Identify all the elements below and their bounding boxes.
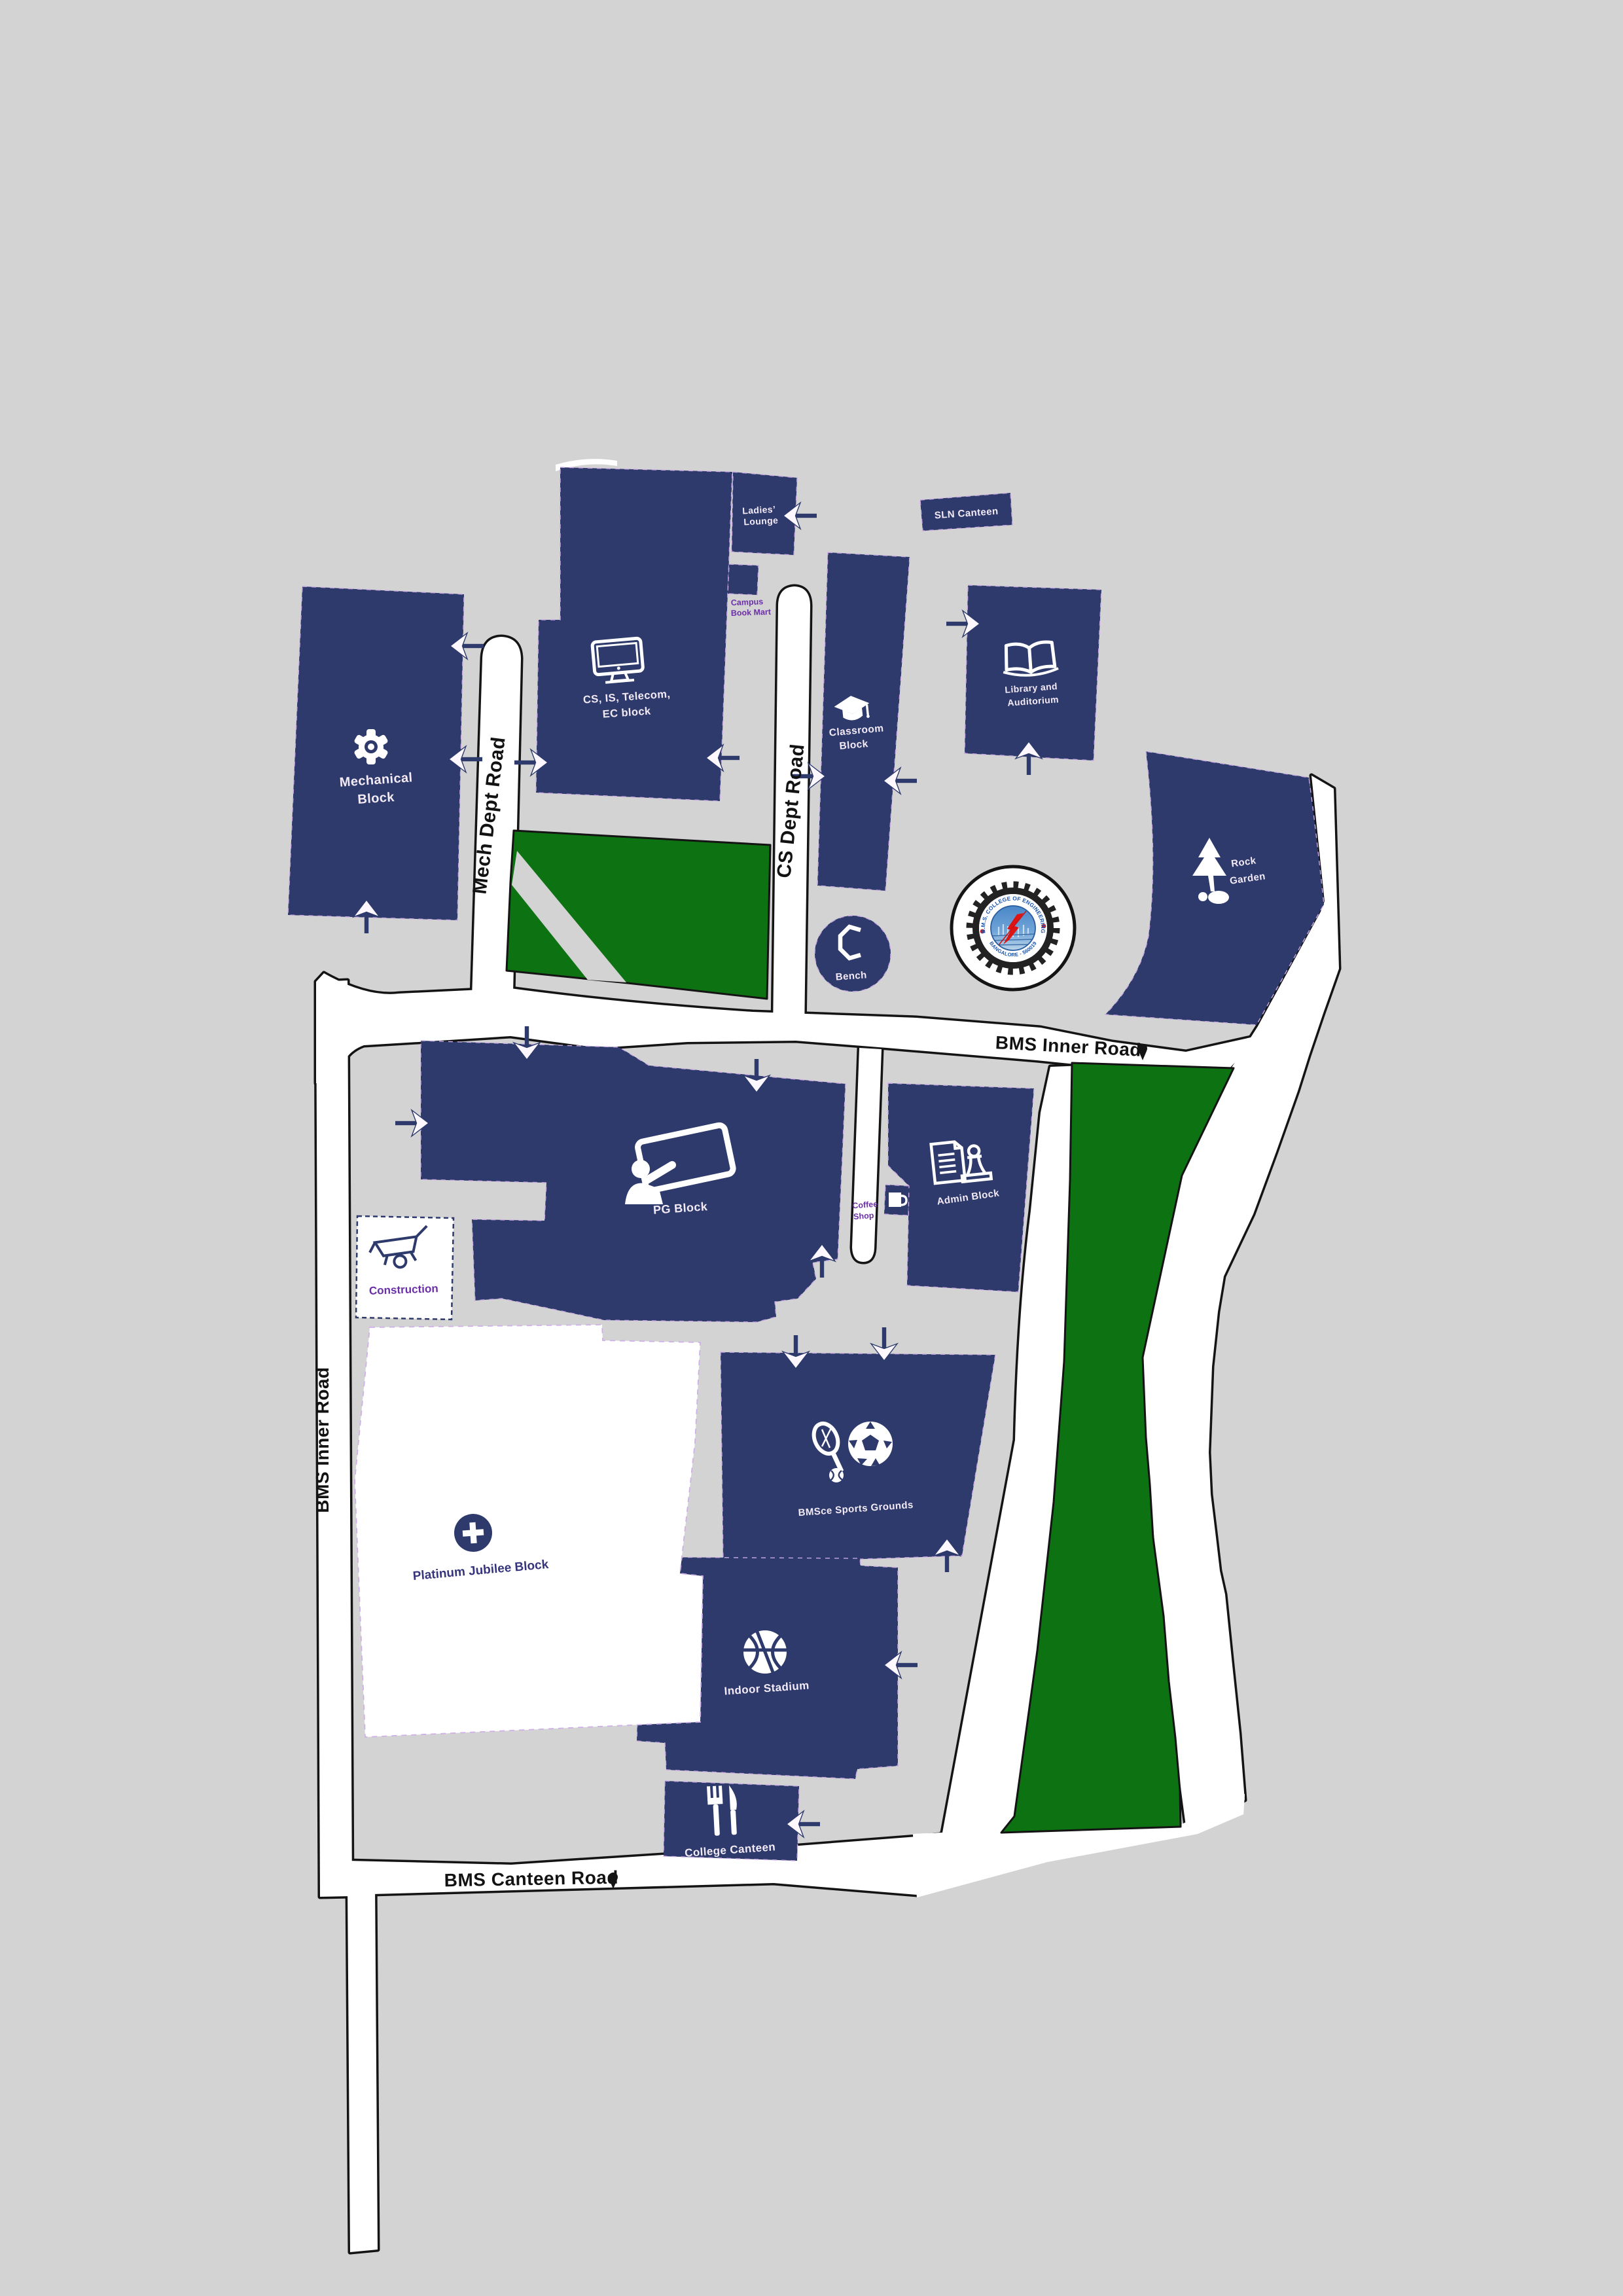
svg-text:BMS Inner Road: BMS Inner Road (312, 1367, 332, 1513)
svg-text:Book Mart: Book Mart (731, 607, 772, 618)
svg-text:Construction: Construction (369, 1282, 438, 1297)
svg-text:Ladies’: Ladies’ (742, 504, 776, 516)
svg-text:Bench: Bench (835, 969, 867, 982)
svg-text:Campus: Campus (731, 597, 764, 607)
svg-text:Block: Block (357, 790, 395, 807)
svg-text:Coffee: Coffee (852, 1200, 878, 1211)
svg-text:Lounge: Lounge (743, 515, 779, 528)
svg-text:Shop: Shop (853, 1211, 875, 1221)
svg-text:BMS Canteen Road: BMS Canteen Road (444, 1867, 618, 1891)
